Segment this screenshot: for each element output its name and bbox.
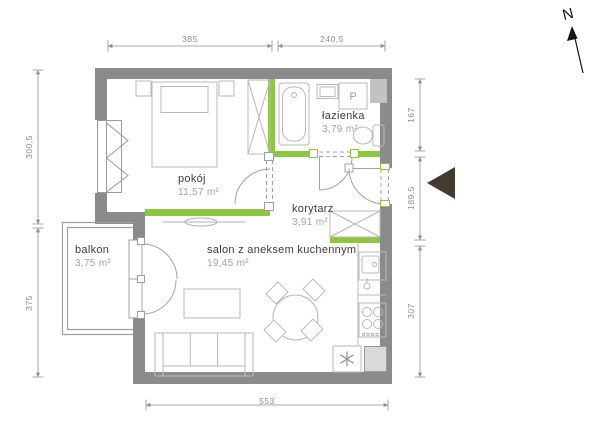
dim-top-1: 385 [155,33,225,45]
jamb-bathroom-door-right [350,149,359,158]
room-name: łazienka [322,110,365,122]
dining-chairs [264,279,325,342]
jamb-bedroom-door-top [264,152,274,161]
coffee-table [184,289,240,318]
room-name: salon z aneksem kuchennym [207,244,356,256]
dim-bottom-1: 553 [232,395,302,407]
balcony-outline [63,223,134,335]
room-label-balcony: balkon 3,75 m² [75,244,111,270]
dim-right-2: 189,5 [405,163,417,233]
bedroom-wardrobe [248,80,270,154]
kitchen-sink [359,252,386,280]
dim-left-1: 300,5 [23,112,35,182]
room-name: balkon [75,244,111,256]
entrance-marker [427,167,455,199]
floor-plan: P [0,0,600,427]
room-label-corridor: korytarz 3,91 m² [292,203,334,229]
jamb-entrance-top [380,163,390,170]
nightstand-right [219,81,234,96]
stove [359,303,386,337]
room-label-bathroom: łazienka 3,79 m² [322,110,365,136]
bedroom-door [235,160,273,204]
room-name: korytarz [292,203,334,215]
room-area: 3,79 m² [322,124,365,136]
north-arrow-icon [567,26,583,73]
tv-console [163,218,245,226]
bathtub [279,83,309,145]
bed [152,82,217,167]
dim-left-2: 375 [23,268,35,338]
room-area: 3,75 m² [75,258,111,270]
nightstand-left [136,81,151,96]
jamb-entrance-bottom [380,200,390,207]
fridge-snowflake-icon [341,352,354,367]
dim-right-1: 167 [405,80,417,150]
balcony-door-handle-top [137,237,145,245]
room-label-bedroom: pokój 11,57 m² [178,173,219,199]
balcony-door-handle-mid [137,275,145,283]
dim-right-3: 307 [405,276,417,346]
corridor-wardrobe [330,211,380,237]
washing-machine-label: P [349,91,356,103]
entrance-door [345,164,389,204]
room-area: 3,91 m² [292,217,334,229]
jamb-bedroom-door-bottom [264,202,274,211]
bedroom-window [98,121,129,193]
room-area: 19,45 m² [207,258,356,270]
balcony-door-handle-bottom [137,311,145,319]
room-area: 11,57 m² [178,187,219,199]
sofa [155,333,253,376]
room-name: pokój [178,173,219,185]
washbasin [317,85,338,99]
dim-top-2: 240,5 [297,33,367,45]
jamb-bathroom-door-left [309,149,318,158]
room-label-living-room: salon z aneksem kuchennym 19,45 m² [207,244,356,270]
